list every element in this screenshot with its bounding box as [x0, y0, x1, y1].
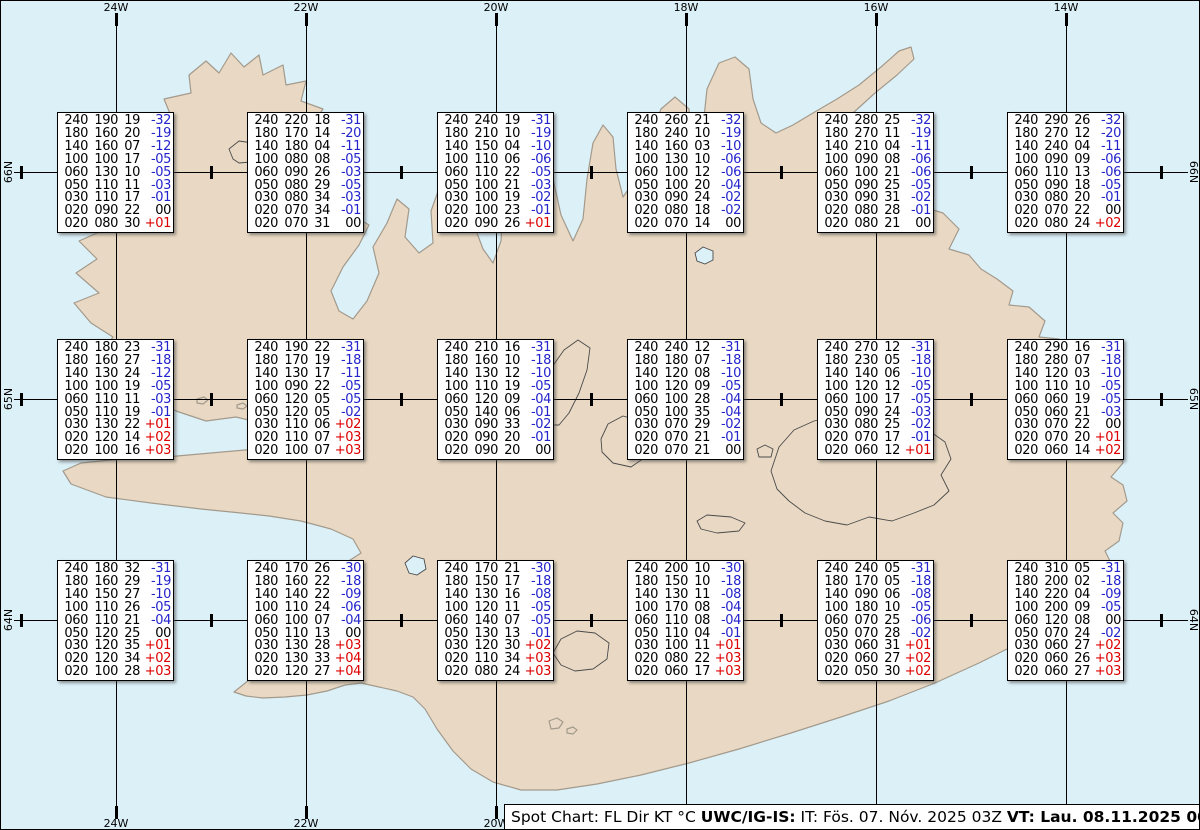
lat-label-left: 66N — [3, 161, 15, 183]
spot-row: 02008024+02 — [1012, 218, 1120, 231]
dir-value: 060 — [1044, 445, 1068, 458]
dir-value: 060 — [664, 666, 688, 679]
spot-row: 02006012+01 — [822, 445, 930, 458]
kt-value: 20 — [504, 445, 520, 458]
spot-row: 02012027+04 — [252, 666, 360, 679]
temp-value: +03 — [1095, 666, 1121, 679]
temp-value: +01 — [145, 218, 171, 231]
spot-box-20W-65N: 24021016-3118016010-1814013012-101001101… — [437, 339, 554, 460]
spot-box-20W-64N: 24017021-3018015017-1814013016-081001201… — [437, 560, 554, 681]
spot-row: 02006027+03 — [1012, 666, 1120, 679]
spot-chart-canvas: 24W24W22W22W20W20W18W18W16W16W14W14W66N6… — [0, 0, 1200, 830]
fl-value: 020 — [444, 445, 468, 458]
spot-box-20W-66N: 24024019-3118021010-1914015004-101001100… — [437, 112, 554, 233]
kt-value: 21 — [884, 218, 900, 231]
kt-value: 14 — [694, 218, 710, 231]
spot-row: 0200701400 — [632, 218, 740, 231]
spot-row: 02010016+03 — [62, 445, 170, 458]
kt-value: 28 — [124, 666, 140, 679]
lat-label-left: 64N — [3, 609, 15, 631]
fl-value: 020 — [634, 218, 658, 231]
spot-box-24W-65N: 24018023-3118016027-1814013024-121001001… — [57, 339, 174, 460]
temp-value: +02 — [1095, 445, 1121, 458]
temp-value: 00 — [345, 218, 361, 231]
spot-row: 02009026+01 — [442, 218, 550, 231]
graticule-tick — [210, 614, 213, 627]
fl-value: 020 — [254, 666, 278, 679]
kt-value: 12 — [884, 445, 900, 458]
coastline — [63, 47, 1127, 790]
graticule-tick — [20, 166, 23, 179]
temp-value: +03 — [335, 445, 361, 458]
temp-value: 00 — [725, 218, 741, 231]
lon-label-top: 22W — [294, 2, 319, 14]
spot-row: 02010007+03 — [252, 445, 360, 458]
fl-value: 020 — [824, 218, 848, 231]
kt-value: 24 — [1074, 218, 1090, 231]
lon-label-bottom: 22W — [294, 818, 319, 830]
spot-box-22W-64N: 24017026-3018016022-1814014022-091001102… — [247, 560, 364, 681]
graticule-tick — [590, 166, 593, 179]
fl-value: 020 — [64, 445, 88, 458]
kt-value: 24 — [504, 666, 520, 679]
dir-value: 060 — [854, 445, 878, 458]
kt-value: 07 — [314, 445, 330, 458]
lon-label-top: 14W — [1054, 2, 1079, 14]
dir-value: 090 — [474, 218, 498, 231]
fl-value: 020 — [824, 666, 848, 679]
temp-value: +03 — [145, 666, 171, 679]
status-text-bold: VT: Lau. 08.11.2025 00Z — [1007, 808, 1200, 826]
lon-label-top: 24W — [104, 2, 129, 14]
spot-box-24W-64N: 24018032-3118016029-1914015027-101001102… — [57, 560, 174, 681]
temp-value: +03 — [145, 445, 171, 458]
spot-box-16W-65N: 24027012-3118023005-1814014006-101001201… — [817, 339, 934, 460]
kt-value: 14 — [1074, 445, 1090, 458]
spot-box-18W-66N: 24026021-3218024010-1914016003-101001301… — [627, 112, 744, 233]
kt-value: 30 — [884, 666, 900, 679]
lat-label-right: 66N — [1187, 161, 1199, 183]
gridline-end-tick — [115, 13, 118, 26]
dir-value: 070 — [284, 218, 308, 231]
spot-box-24W-66N: 24019019-3218016020-1914016007-121001001… — [57, 112, 174, 233]
temp-value: 00 — [915, 218, 931, 231]
fl-value: 020 — [64, 666, 88, 679]
spot-row: 02005030+02 — [822, 666, 930, 679]
fl-value: 020 — [254, 445, 278, 458]
spot-box-22W-66N: 24022018-3118017014-2014018004-111000800… — [247, 112, 364, 233]
fl-value: 020 — [634, 445, 658, 458]
kt-value: 27 — [314, 666, 330, 679]
graticule-tick — [590, 614, 593, 627]
status-text-bold: UWC/IG-IS: — [701, 808, 796, 826]
spot-row: 0200703100 — [252, 218, 360, 231]
dir-value: 070 — [664, 218, 688, 231]
gridline-end-tick — [875, 13, 878, 26]
spot-row: 02006017+03 — [632, 666, 740, 679]
temp-value: 00 — [725, 445, 741, 458]
spot-box-18W-64N: 24020010-3018015010-1814013011-081001700… — [627, 560, 744, 681]
fl-value: 020 — [634, 666, 658, 679]
graticule-tick — [780, 393, 783, 406]
status-text: Spot Chart: FL Dir KT °C — [511, 808, 701, 826]
graticule-tick — [970, 166, 973, 179]
spot-row: 0200902000 — [442, 445, 550, 458]
gridline-end-tick — [495, 13, 498, 26]
fl-value: 020 — [1014, 445, 1038, 458]
graticule-tick — [970, 393, 973, 406]
graticule-tick — [400, 614, 403, 627]
graticule-tick — [210, 166, 213, 179]
temp-value: 00 — [535, 445, 551, 458]
spot-row: 02010028+03 — [62, 666, 170, 679]
lat-label-left: 65N — [3, 388, 15, 410]
kt-value: 31 — [314, 218, 330, 231]
dir-value: 100 — [94, 666, 118, 679]
graticule-tick — [20, 614, 23, 627]
dir-value: 080 — [854, 218, 878, 231]
graticule-tick — [210, 393, 213, 406]
lon-label-top: 20W — [484, 2, 509, 14]
graticule-tick — [780, 166, 783, 179]
graticule-tick — [20, 393, 23, 406]
fl-value: 020 — [64, 218, 88, 231]
gridline-end-tick — [1065, 13, 1068, 26]
graticule-tick — [970, 614, 973, 627]
fl-value: 020 — [254, 218, 278, 231]
spot-row: 02006014+02 — [1012, 445, 1120, 458]
lat-label-right: 64N — [1187, 609, 1199, 631]
kt-value: 16 — [124, 445, 140, 458]
lat-label-right: 65N — [1187, 388, 1199, 410]
temp-value: +02 — [905, 666, 931, 679]
dir-value: 070 — [664, 445, 688, 458]
graticule-tick — [400, 166, 403, 179]
temp-value: +01 — [525, 218, 551, 231]
spot-row: 0200702100 — [632, 445, 740, 458]
gridline-end-tick — [305, 13, 308, 26]
dir-value: 080 — [94, 218, 118, 231]
dir-value: 080 — [1044, 218, 1068, 231]
temp-value: +03 — [715, 666, 741, 679]
temp-value: +03 — [525, 666, 551, 679]
temp-value: +02 — [1095, 218, 1121, 231]
kt-value: 26 — [504, 218, 520, 231]
dir-value: 050 — [854, 666, 878, 679]
gridline-end-tick — [685, 13, 688, 26]
lon-label-top: 18W — [674, 2, 699, 14]
graticule-tick — [1160, 166, 1163, 179]
spot-row: 02008024+03 — [442, 666, 550, 679]
dir-value: 120 — [284, 666, 308, 679]
spot-box-16W-64N: 24024005-3118017005-1814009006-081001801… — [817, 560, 934, 681]
dir-value: 100 — [94, 445, 118, 458]
status-text: IT: Fös. 07. Nóv. 2025 03Z — [796, 808, 1007, 826]
spot-box-16W-66N: 24028025-3218027011-1914021004-111000900… — [817, 112, 934, 233]
temp-value: +01 — [905, 445, 931, 458]
spot-box-14W-64N: 24031005-3118020002-1814022004-091002000… — [1007, 560, 1124, 681]
graticule-tick — [400, 393, 403, 406]
lon-label-bottom: 24W — [104, 818, 129, 830]
fl-value: 020 — [824, 445, 848, 458]
spot-box-18W-65N: 24024012-3118018007-1814012008-101001200… — [627, 339, 744, 460]
spot-row: 02008030+01 — [62, 218, 170, 231]
dir-value: 090 — [474, 445, 498, 458]
kt-value: 21 — [694, 445, 710, 458]
fl-value: 020 — [1014, 666, 1038, 679]
spot-box-22W-65N: 24019022-3118017019-1814013017-111000902… — [247, 339, 364, 460]
fl-value: 020 — [444, 666, 468, 679]
kt-value: 27 — [1074, 666, 1090, 679]
dir-value: 080 — [474, 666, 498, 679]
temp-value: +04 — [335, 666, 361, 679]
spot-box-14W-66N: 24029026-3218027012-2014024004-111000900… — [1007, 112, 1124, 233]
graticule-tick — [590, 393, 593, 406]
spot-box-14W-65N: 24029016-3118028007-1814012003-101001101… — [1007, 339, 1124, 460]
fl-value: 020 — [444, 218, 468, 231]
spot-row: 0200802100 — [822, 218, 930, 231]
kt-value: 30 — [124, 218, 140, 231]
kt-value: 17 — [694, 666, 710, 679]
graticule-tick — [780, 614, 783, 627]
dir-value: 100 — [284, 445, 308, 458]
graticule-tick — [1160, 393, 1163, 406]
status-bar: Spot Chart: FL Dir KT °C UWC/IG-IS: IT: … — [504, 804, 1200, 830]
lon-label-top: 16W — [864, 2, 889, 14]
graticule-tick — [1160, 614, 1163, 627]
dir-value: 060 — [1044, 666, 1068, 679]
fl-value: 020 — [1014, 218, 1038, 231]
